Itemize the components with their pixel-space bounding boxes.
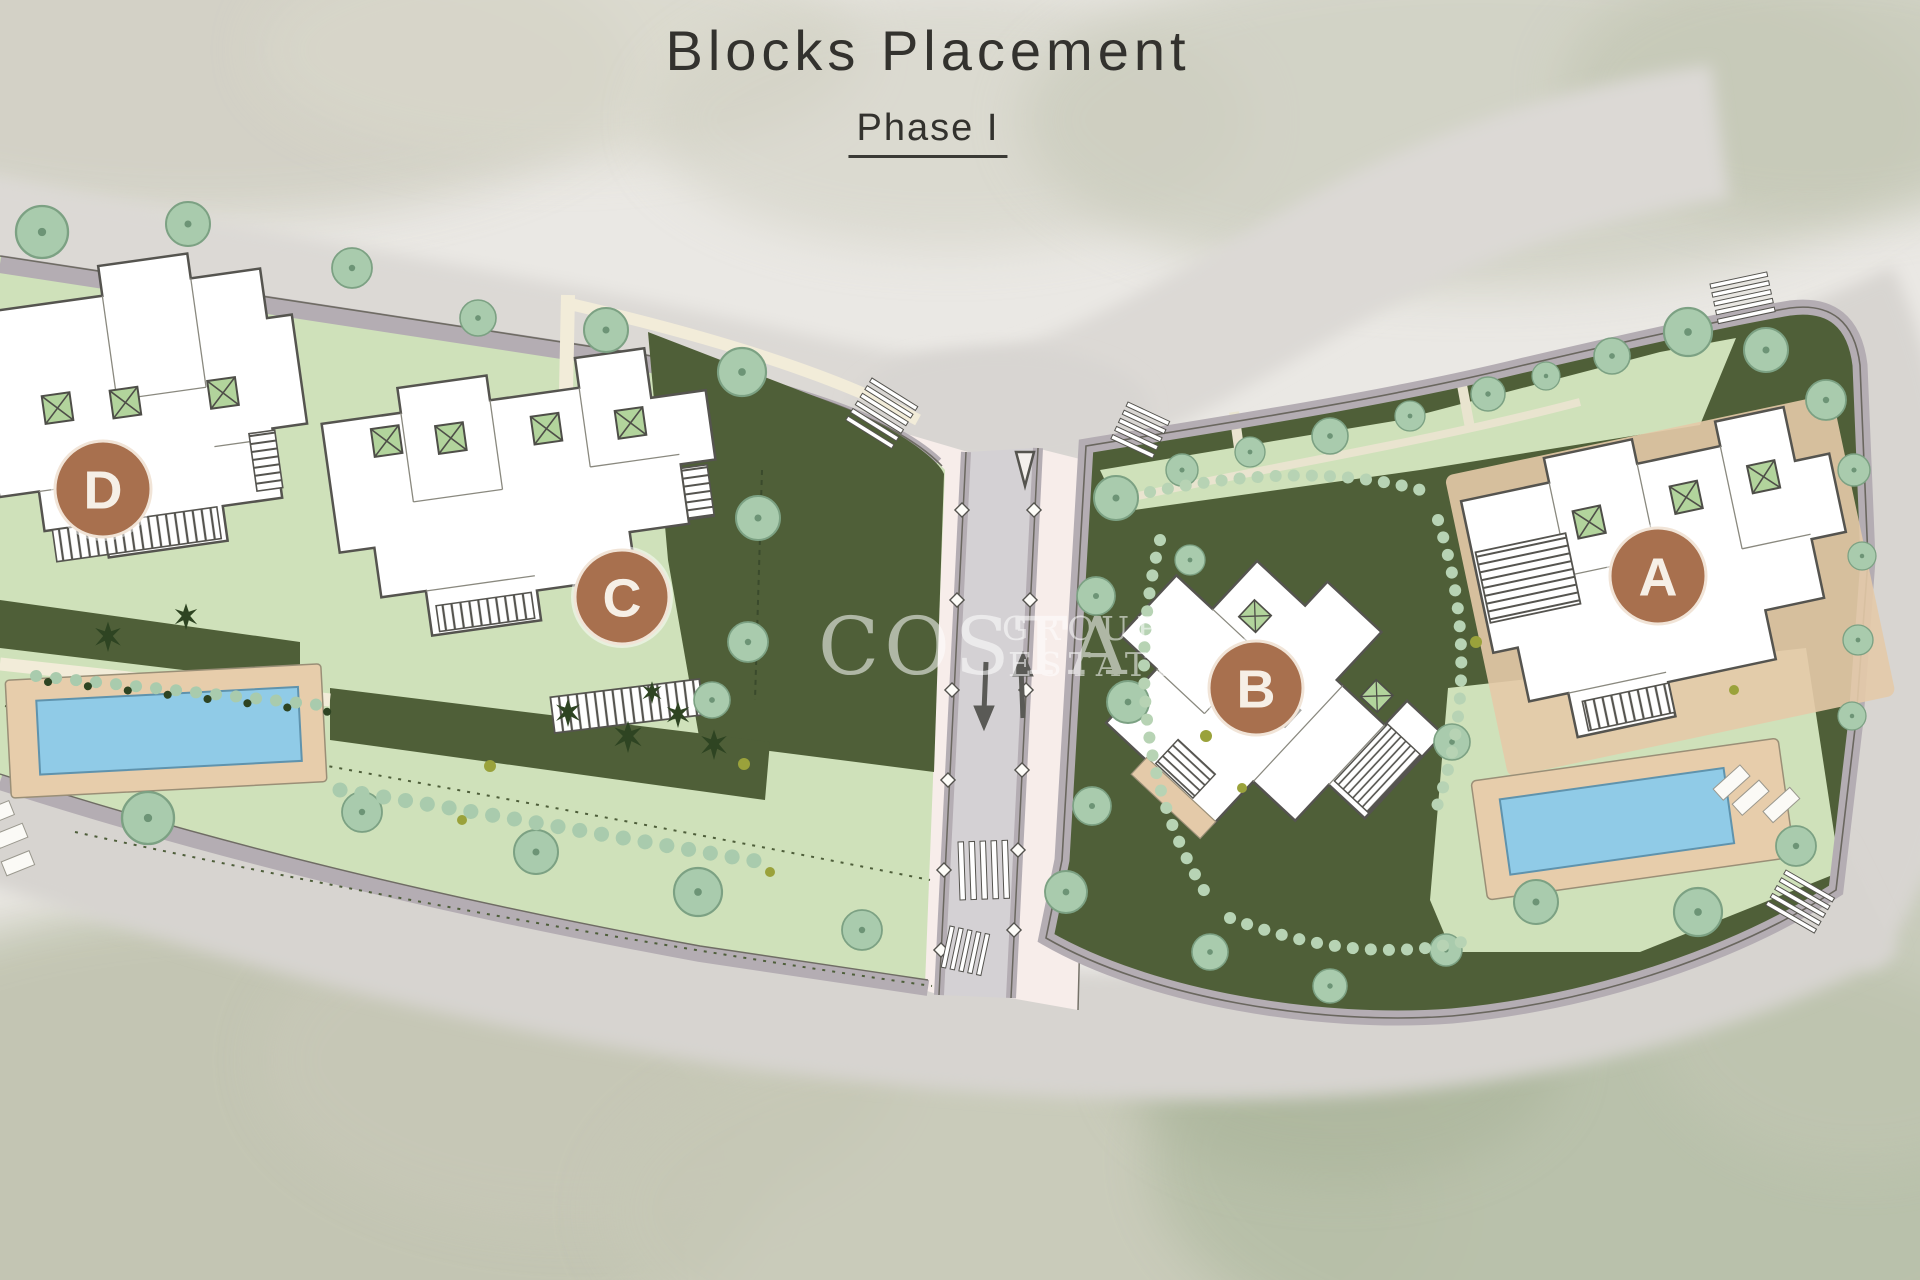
pool-left — [5, 664, 327, 798]
block-a-label: A — [1639, 547, 1678, 607]
block-b-badge: B — [1205, 637, 1307, 739]
block-c-label: C — [603, 568, 642, 628]
block-b-label: B — [1237, 659, 1276, 719]
watermark-secondary-bottom: ESTATES — [1008, 645, 1215, 684]
block-c-badge: C — [571, 546, 673, 648]
watermark: COSTA GROUP ESTATES — [818, 600, 1215, 693]
block-d-label: D — [84, 460, 123, 520]
watermark-secondary-top: GROUP — [1002, 609, 1165, 648]
site-plan-canvas: D C B A COSTA GROUP ESTATES — [0, 0, 1920, 1280]
plan-header: Blocks Placement Phase I — [665, 18, 1190, 158]
page-title: Blocks Placement — [665, 18, 1190, 83]
block-d-badge: D — [51, 437, 155, 541]
site-plan-page: D C B A COSTA GROUP ESTATES Blocks Place… — [0, 0, 1920, 1280]
block-a-badge: A — [1606, 524, 1710, 628]
page-subtitle: Phase I — [849, 107, 1008, 158]
